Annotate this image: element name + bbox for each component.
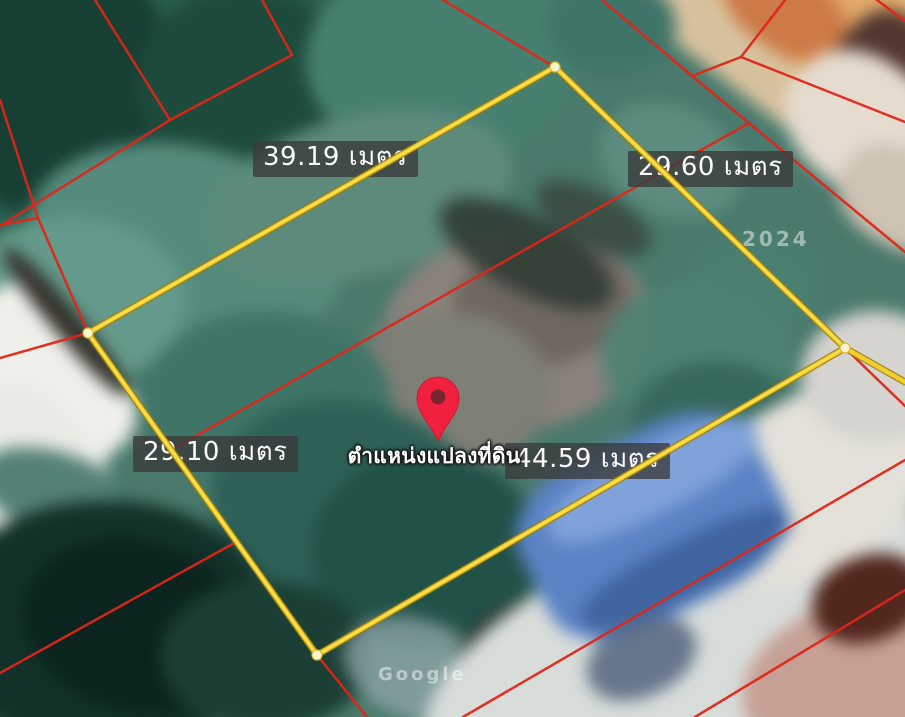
pin-caption: ตำแหน่งแปลงที่ดิน xyxy=(324,440,544,473)
measurement-label-top-left: 39.19 เมตร xyxy=(253,141,418,177)
satellite-imagery xyxy=(0,0,905,717)
map-canvas[interactable]: 2024 Google 39.19 เมตร 29.60 เมตร 29.10 … xyxy=(0,0,905,717)
measurement-label-bottom-left: 29.10 เมตร xyxy=(133,436,298,472)
measurement-label-top-right: 29.60 เมตร xyxy=(628,151,793,187)
